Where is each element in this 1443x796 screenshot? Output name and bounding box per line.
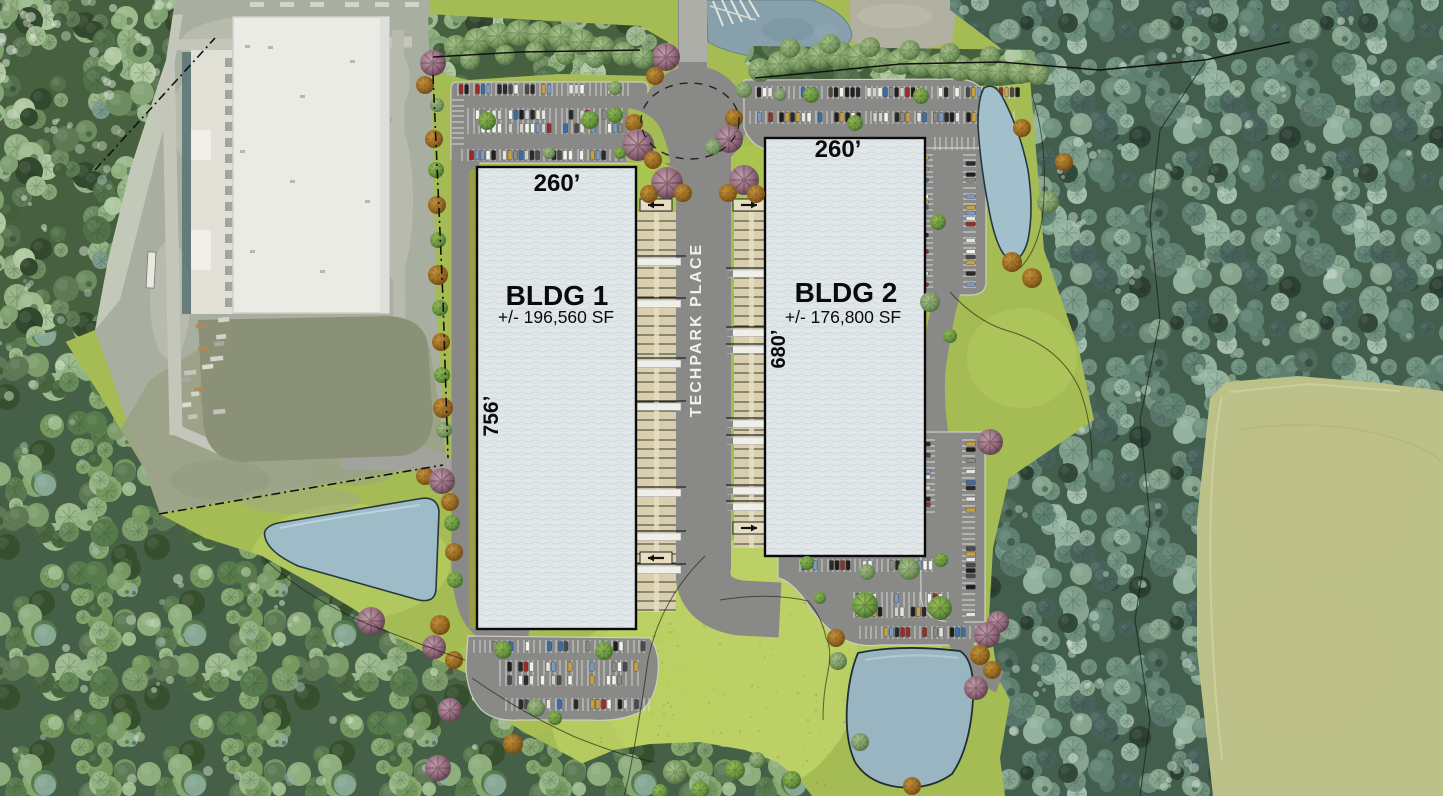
svg-text:260’: 260’ <box>534 170 581 197</box>
svg-text:680’: 680’ <box>768 330 790 369</box>
svg-text:+/- 176,800 SF: +/- 176,800 SF <box>785 307 901 327</box>
svg-text:260’: 260’ <box>815 136 862 163</box>
svg-text:BLDG 2: BLDG 2 <box>795 277 898 308</box>
svg-text:756’: 756’ <box>480 396 503 437</box>
svg-text:+/- 196,560 SF: +/- 196,560 SF <box>498 307 614 327</box>
svg-text:TECHPARK PLACE: TECHPARK PLACE <box>688 243 705 417</box>
